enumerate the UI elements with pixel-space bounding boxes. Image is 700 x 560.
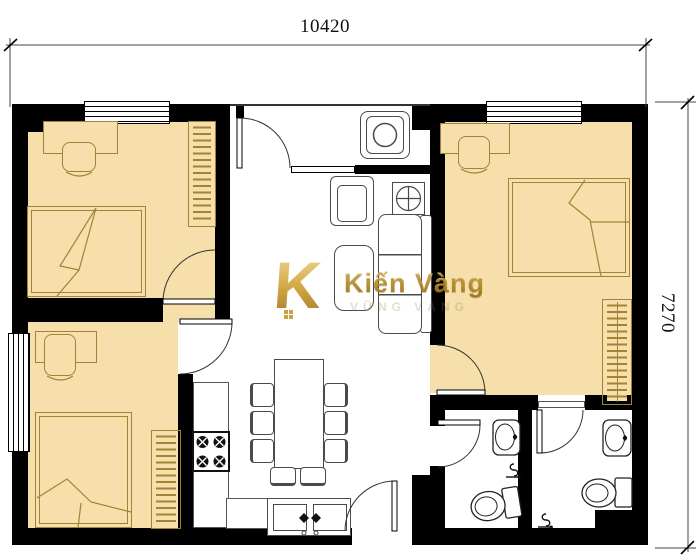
vent-cross-icon (397, 187, 421, 211)
dimension-height-label: 7270 (658, 283, 678, 343)
washbasin (493, 420, 520, 455)
floor-plan-canvas: 10420 7270 K Kiến Vàng VỮNG VÀNG (0, 0, 700, 560)
washbasin (603, 420, 631, 456)
floor-drain-icon (506, 464, 521, 479)
floor-drain-icon (538, 514, 553, 529)
brand-name: Kiến Vàng (344, 268, 485, 299)
door-entrance (345, 481, 397, 531)
toilet (469, 486, 522, 523)
watermark: K Kiến Vàng VỮNG VÀNG (268, 254, 498, 330)
door-left-bathroom (438, 420, 480, 467)
door-balcony (237, 118, 290, 168)
door-top-left-bedroom (163, 250, 215, 304)
toilet (582, 478, 632, 507)
door-right-bedroom (437, 345, 485, 395)
door-bottom-left-bedroom (180, 319, 232, 374)
washing-machine-door-icon (374, 124, 397, 147)
stove-burners (197, 436, 226, 468)
logo-window-squares-icon (284, 310, 298, 322)
brand-logo-icon: K (272, 254, 324, 316)
sink-taps (299, 513, 321, 535)
brand-tagline: VỮNG VÀNG (350, 300, 469, 314)
bed-fold-lines (37, 180, 629, 528)
door-right-bathroom (537, 410, 583, 453)
dimension-width-label: 10420 (275, 16, 375, 38)
